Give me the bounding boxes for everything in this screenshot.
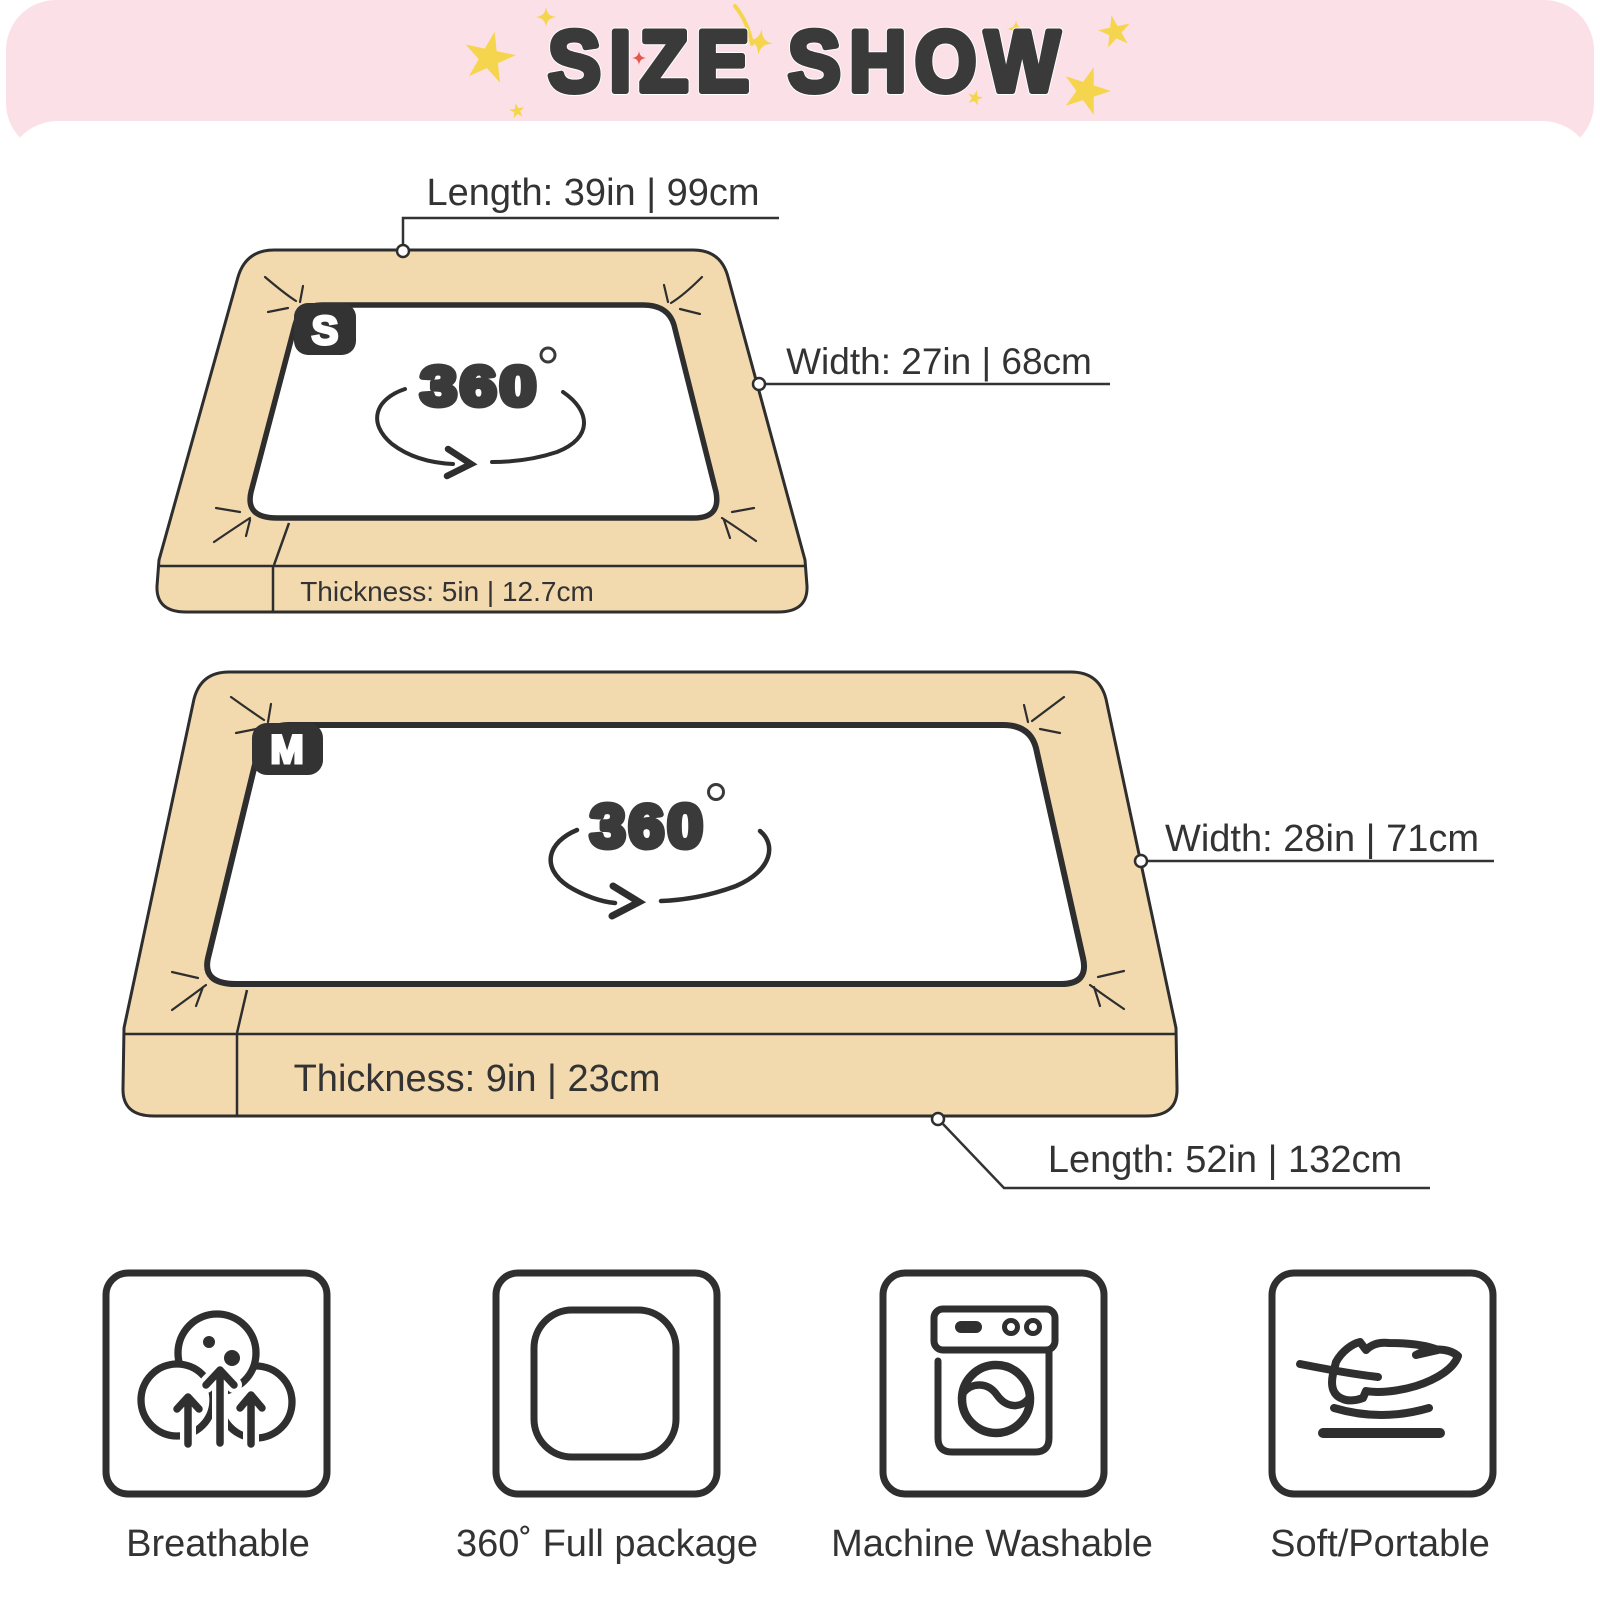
svg-text:360: 360 — [590, 793, 706, 860]
svg-text:Soft/Portable: Soft/Portable — [1270, 1523, 1490, 1565]
svg-text:Length: 52in | 132cm: Length: 52in | 132cm — [1048, 1139, 1402, 1181]
svg-text:SIZE SHOW: SIZE SHOW — [548, 14, 1068, 110]
svg-text:360: 360 — [421, 355, 540, 417]
svg-text:Thickness: 9in | 23cm: Thickness: 9in | 23cm — [294, 1058, 661, 1100]
svg-text:M: M — [270, 728, 303, 772]
svg-text:Width: 28in | 71cm: Width: 28in | 71cm — [1165, 818, 1479, 860]
svg-text:Machine Washable: Machine Washable — [831, 1523, 1153, 1565]
svg-text:360˚ Full package: 360˚ Full package — [456, 1523, 758, 1565]
svg-text:S: S — [312, 309, 339, 353]
svg-text:Breathable: Breathable — [126, 1523, 310, 1565]
svg-text:Thickness: 5in | 12.7cm: Thickness: 5in | 12.7cm — [300, 576, 594, 607]
svg-text:Length: 39in | 99cm: Length: 39in | 99cm — [426, 172, 759, 214]
svg-text:Width: 27in | 68cm: Width: 27in | 68cm — [786, 341, 1092, 382]
